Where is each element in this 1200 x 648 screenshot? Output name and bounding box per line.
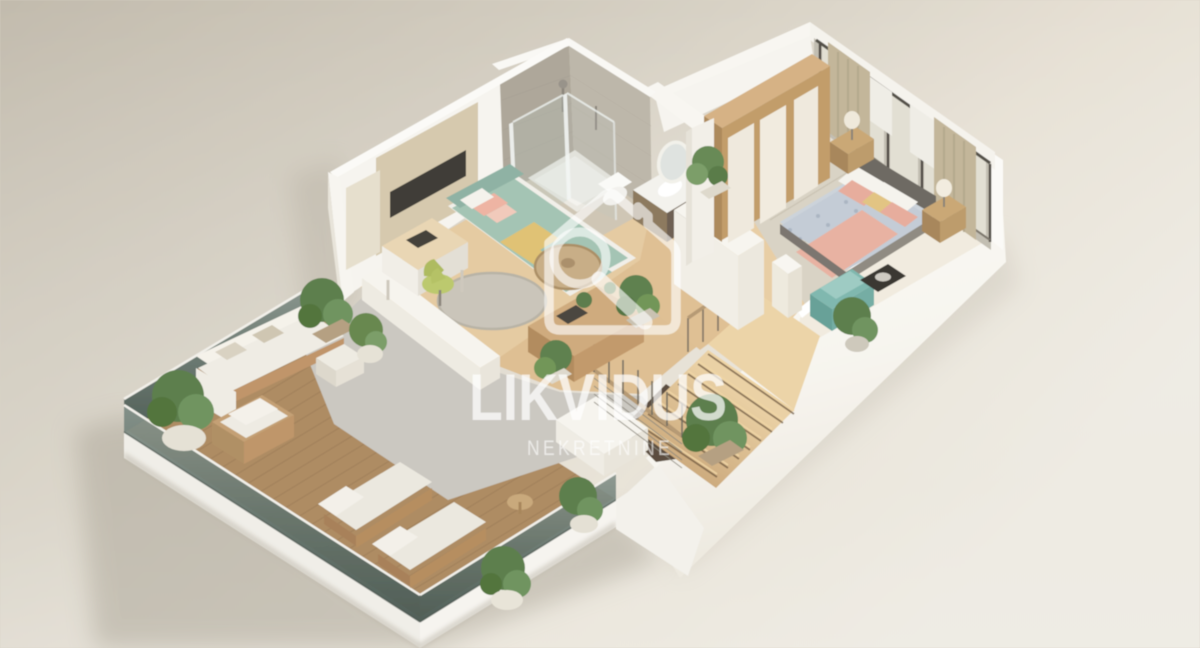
svg-text:LIKVIDUS: LIKVIDUS [469, 360, 727, 434]
svg-text:NEKRETNINE: NEKRETNINE [527, 437, 673, 460]
